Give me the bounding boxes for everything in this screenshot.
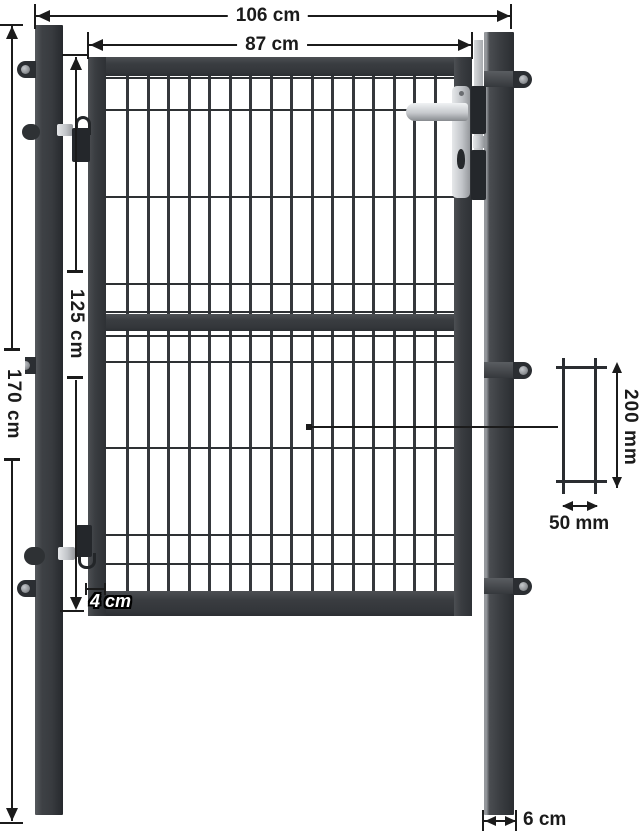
mesh-wire (106, 311, 454, 313)
door-handle (406, 103, 468, 121)
keyhole-icon (457, 149, 465, 169)
mesh-bar (290, 76, 293, 591)
dim-mesh-width-label: 50 mm (549, 513, 609, 535)
screw-icon (21, 65, 30, 74)
dim-post-height-label: 170 cm (1, 352, 25, 456)
lower-hinge-adjuster-knob (24, 547, 45, 565)
mesh-bar (147, 76, 150, 591)
dim-mesh-height-label: 200 mm (619, 358, 640, 496)
right-post-clamp-middle (484, 362, 514, 378)
dim-post-width-label: 6 cm (523, 809, 566, 831)
latch-block-lower (471, 150, 486, 200)
screw-icon (519, 75, 528, 84)
dim-post-height-break-dash (4, 348, 20, 351)
right-post-clamp-bottom (484, 578, 514, 594)
upper-hinge-adjuster-knob (22, 124, 40, 140)
arrow-left-icon (562, 501, 573, 511)
arrow-up-icon (6, 26, 18, 39)
dim-gate-height-line-lower (75, 380, 77, 608)
mesh-wire (106, 109, 454, 111)
mesh-bar (372, 76, 375, 591)
dim-post-height-line-lower (11, 461, 13, 821)
arrow-down-icon (6, 808, 18, 821)
mesh-wire (106, 534, 454, 536)
dim-mesh-height-line (616, 364, 618, 488)
dim-post-height-line-upper (11, 26, 13, 348)
detail-vertical-rod-right (594, 358, 597, 494)
detail-horizontal-rod-top (556, 366, 607, 369)
gate-bottom-rail (88, 591, 472, 616)
arrow-left-icon (37, 10, 50, 22)
mesh-bar (188, 76, 191, 591)
mesh-wire (106, 77, 454, 79)
gate-top-rail (88, 57, 472, 76)
dim-post-height-tick-bottom (0, 822, 23, 824)
gate-mesh (106, 76, 454, 591)
mesh-wire (106, 283, 454, 285)
arrow-right-icon (458, 39, 471, 51)
latch-bolt (473, 136, 484, 148)
mesh-bar (311, 76, 314, 591)
right-post-clamp-top (484, 71, 514, 87)
arrow-right-icon (587, 501, 598, 511)
arrow-up-icon (70, 57, 82, 70)
mesh-bar (413, 76, 416, 591)
mesh-wire (106, 447, 454, 449)
lower-hinge-hook (78, 553, 96, 569)
mesh-bar (331, 76, 334, 591)
dim-gate-height-line-upper (75, 57, 77, 272)
dim-frame-tube-line (86, 588, 106, 590)
dim-gate-height-label: 125 cm (64, 275, 88, 373)
lower-hinge-pin (58, 547, 75, 560)
leader-line (309, 426, 558, 428)
mesh-bar (208, 76, 211, 591)
arrow-right-icon (497, 10, 510, 22)
mesh-wire (106, 361, 454, 363)
mesh-bar (249, 76, 252, 591)
left-post (35, 25, 63, 815)
mesh-wire (106, 335, 454, 337)
arrow-down-icon (70, 597, 82, 610)
detail-horizontal-rod-bottom (556, 480, 607, 483)
mesh-bar (167, 76, 170, 591)
arrow-right-icon (505, 816, 516, 826)
mesh-bar (270, 76, 273, 591)
arrow-left-icon (90, 39, 103, 51)
dim-gate-height-tick-top (62, 54, 88, 56)
dim-gate-height-break-dash (67, 376, 83, 379)
screw-icon (21, 584, 30, 593)
dim-gate-height-break-dash (67, 270, 83, 273)
mesh-wire (106, 196, 454, 198)
mesh-bar (393, 76, 396, 591)
mesh-wire (106, 563, 454, 565)
dim-gate-height-tick-bottom (60, 610, 84, 612)
diagram-canvas: 106 cm 87 cm 170 cm 125 cm 4 cm 200 mm 5… (0, 0, 640, 831)
latch-block-upper (471, 86, 486, 134)
mesh-bar (352, 76, 355, 591)
upper-hinge-pin (57, 124, 73, 136)
dim-frame-tube-label: 4 cm (90, 591, 131, 612)
detail-vertical-rod-left (562, 358, 565, 494)
mesh-bar (434, 76, 437, 591)
mesh-bar (126, 76, 129, 591)
plate-screw-icon (459, 91, 464, 96)
dim-gate-width-label: 87 cm (237, 33, 307, 57)
right-post (484, 32, 514, 815)
screw-icon (519, 366, 528, 375)
gate-middle-rail (88, 314, 472, 331)
arrow-left-icon (485, 816, 496, 826)
dim-total-width-label: 106 cm (228, 4, 308, 28)
screw-icon (519, 582, 528, 591)
mesh-bar (229, 76, 232, 591)
